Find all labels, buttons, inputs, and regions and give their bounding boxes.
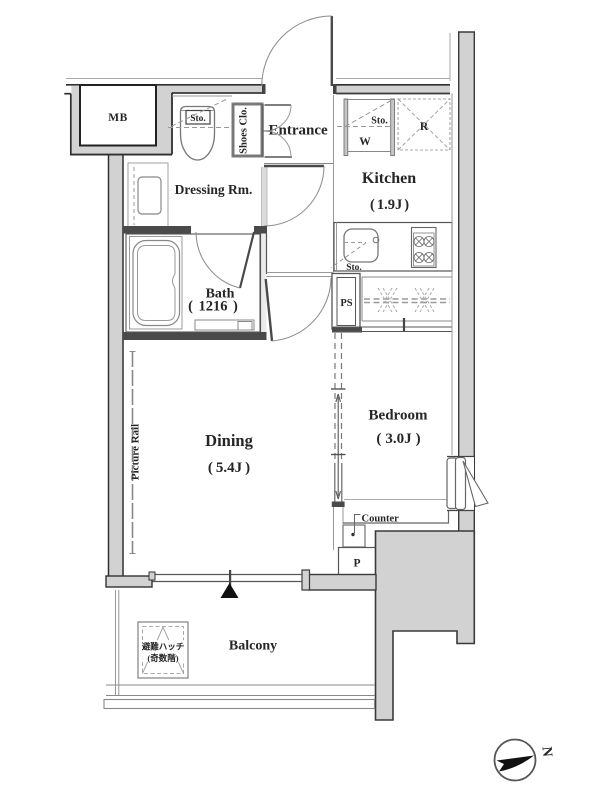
svg-text:避難ハッチ: 避難ハッチ xyxy=(142,642,185,652)
svg-text:Sto.: Sto. xyxy=(371,116,388,127)
svg-text:W: W xyxy=(359,136,371,148)
svg-text:Entrance: Entrance xyxy=(269,123,329,139)
svg-text:MB: MB xyxy=(108,112,128,124)
svg-text:Sto.: Sto. xyxy=(346,263,362,273)
svg-text:PS: PS xyxy=(340,298,352,309)
svg-text:Balcony: Balcony xyxy=(229,639,277,654)
svg-text:(1.9J): (1.9J) xyxy=(370,197,409,213)
svg-text:Shoes Clo.: Shoes Clo. xyxy=(239,107,250,154)
svg-text:P: P xyxy=(353,558,360,570)
svg-text:Counter: Counter xyxy=(362,514,400,525)
svg-text:Picture Rail: Picture Rail xyxy=(130,424,142,480)
svg-text:(奇数階): (奇数階) xyxy=(147,653,178,663)
svg-text:N: N xyxy=(539,746,555,757)
svg-text:Dining: Dining xyxy=(205,431,253,450)
svg-text:Kitchen: Kitchen xyxy=(362,170,416,187)
svg-text:Bedroom: Bedroom xyxy=(369,408,428,424)
svg-text:R: R xyxy=(420,121,429,133)
svg-text:Dressing Rm.: Dressing Rm. xyxy=(175,182,253,197)
svg-text:Sto.: Sto. xyxy=(190,114,206,124)
